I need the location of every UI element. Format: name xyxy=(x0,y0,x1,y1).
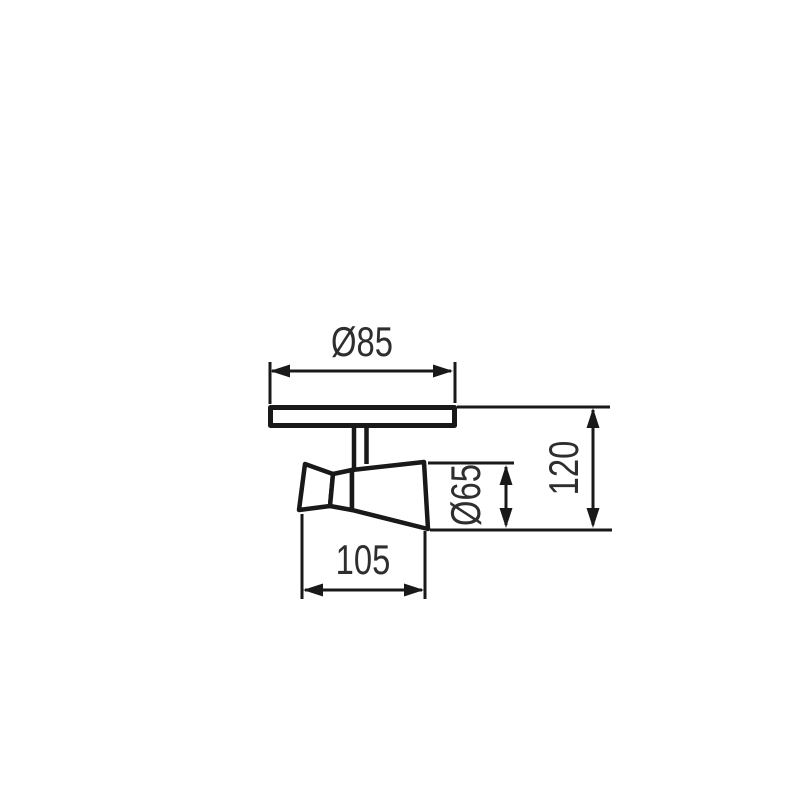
arrow-height-up xyxy=(587,408,600,428)
fixture-outline xyxy=(271,408,455,530)
dimension-drawing-canvas: Ø85 105 Ø65 120 xyxy=(0,0,800,800)
arrow-plate-right xyxy=(433,365,453,378)
head-waist-ring xyxy=(330,470,352,510)
arrow-width-right xyxy=(404,584,424,597)
spotlight-technical-drawing: Ø85 105 Ø65 120 xyxy=(0,0,800,800)
arrow-head-up xyxy=(500,465,513,485)
dim-label-head-diameter: Ø65 xyxy=(442,464,489,526)
dim-label-body-width: 105 xyxy=(336,536,391,583)
arrow-head-down xyxy=(500,508,513,528)
arrow-width-left xyxy=(303,584,323,597)
dim-label-plate-diameter: Ø85 xyxy=(331,318,393,365)
arrow-plate-left xyxy=(270,365,290,378)
dim-label-overall-height: 120 xyxy=(540,441,587,496)
head-back-cap xyxy=(299,464,333,510)
mounting-plate xyxy=(271,408,455,426)
dimension-labels: Ø85 105 Ø65 120 xyxy=(331,318,587,583)
arrow-height-down xyxy=(587,508,600,528)
head-cone xyxy=(352,462,428,529)
